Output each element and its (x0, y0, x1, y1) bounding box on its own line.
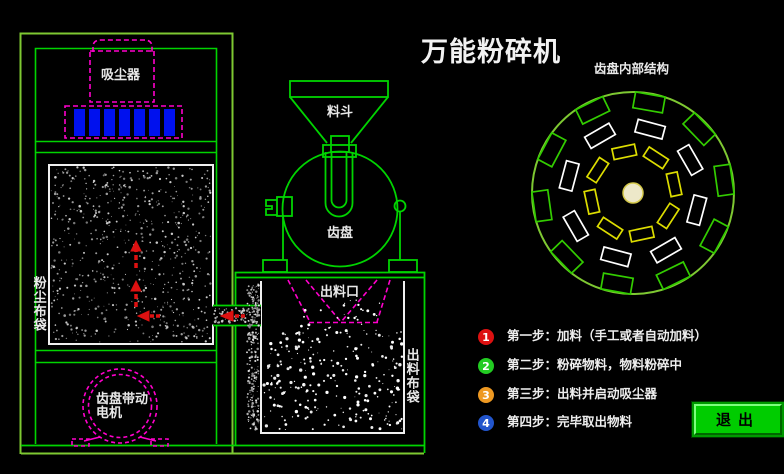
dust-collector-label: 吸尘器 (101, 69, 140, 83)
step-2-text: 第二步：粉碎物料，物料粉碎中 (507, 358, 709, 372)
page-title: 万能粉碎机 (421, 30, 561, 69)
disc-label: 齿盘 (327, 227, 353, 241)
motor-label-line2: 电机 (96, 407, 122, 421)
filter-bar-set (74, 109, 175, 136)
step-row-3: 3 第三步：出料并启动吸尘器 (478, 387, 709, 403)
step-1-badge: 1 (478, 329, 494, 345)
step-row-2: 2 第二步：粉碎物料，物料粉碎中 (478, 358, 709, 374)
step-4-badge: 4 (478, 415, 494, 431)
gear-disc-diagram (532, 92, 734, 294)
step-3-text: 第三步：出料并启动吸尘器 (507, 387, 709, 401)
step-3-badge: 3 (478, 387, 494, 403)
step-1-text: 第一步：加料（手工或者自动加料） (507, 329, 709, 343)
dust-speckles (51, 166, 212, 342)
dust-bag-chamber (49, 165, 213, 344)
pulverizer-simulation-screen: 万能粉碎机 齿盘内部结构 吸尘器 粉尘布袋 齿盘带动 电机 料斗 齿盘 出料口 … (0, 0, 784, 474)
exit-button[interactable]: 退出 (694, 404, 782, 435)
material-particles (262, 300, 403, 431)
dust-bag-label: 粉尘布袋 (31, 276, 45, 332)
hopper-label: 料斗 (327, 106, 353, 120)
step-row-4: 4 第四步：完毕取出物料 (478, 415, 709, 431)
outlet-bag-label: 出料布袋 (404, 348, 418, 404)
disc-diagram-title: 齿盘内部结构 (594, 58, 669, 77)
step-row-1: 1 第一步：加料（手工或者自动加料） (478, 329, 709, 345)
disc-center-hub (623, 183, 643, 203)
outlet-label: 出料口 (320, 286, 359, 300)
step-2-badge: 2 (478, 358, 494, 374)
filter-bars (65, 106, 182, 138)
step-4-text: 第四步：完毕取出物料 (507, 415, 709, 429)
motor-label-line1: 齿盘带动 (96, 393, 148, 407)
